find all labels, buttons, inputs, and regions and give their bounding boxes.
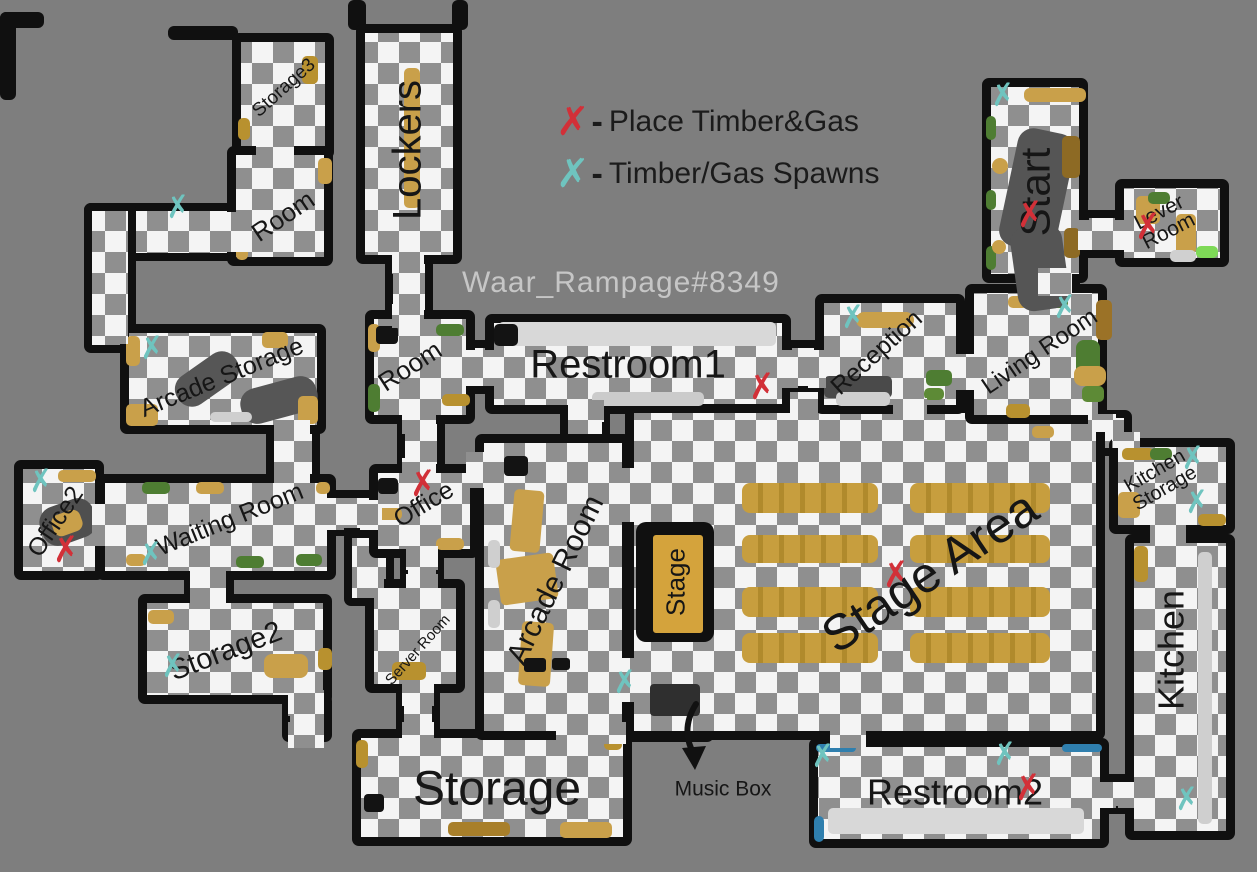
furniture bbox=[1074, 366, 1106, 386]
furniture bbox=[318, 158, 332, 184]
place-marker: ✗ bbox=[50, 531, 83, 569]
door-opening bbox=[92, 318, 128, 344]
furniture bbox=[1062, 136, 1080, 178]
door-opening bbox=[288, 690, 324, 716]
door-opening bbox=[480, 350, 498, 386]
music-box-arrow bbox=[668, 700, 720, 774]
furniture bbox=[238, 118, 250, 140]
furniture bbox=[1082, 386, 1104, 402]
table-row bbox=[910, 633, 1050, 663]
door-opening bbox=[460, 350, 478, 386]
door-marker bbox=[378, 478, 398, 494]
door-opening bbox=[616, 468, 640, 522]
door-opening bbox=[92, 504, 114, 546]
wall-stub bbox=[168, 26, 238, 40]
place-marker: ✗ bbox=[1014, 196, 1047, 234]
furniture bbox=[318, 648, 332, 670]
spawn-marker: ✗ bbox=[1178, 442, 1207, 475]
table-row bbox=[742, 535, 878, 563]
place-marker: ✗ bbox=[1012, 769, 1045, 807]
furniture bbox=[488, 600, 500, 628]
legend-dash: - bbox=[592, 155, 603, 194]
door-opening bbox=[392, 248, 424, 274]
door-opening bbox=[406, 574, 438, 598]
door-opening bbox=[402, 410, 436, 434]
door-opening bbox=[1088, 414, 1116, 432]
spawn-marker: ✗ bbox=[808, 740, 837, 773]
place-marker: ✗ bbox=[407, 465, 440, 503]
furniture bbox=[148, 610, 174, 624]
furniture bbox=[1006, 404, 1030, 418]
door-opening bbox=[1150, 522, 1186, 546]
watermark: Waar_Rampage#8349 bbox=[462, 266, 780, 300]
legend-dash: - bbox=[592, 103, 603, 142]
furniture bbox=[986, 190, 996, 210]
furniture bbox=[356, 740, 368, 768]
spawn-marker: ✗ bbox=[1182, 486, 1211, 519]
door-opening bbox=[1118, 782, 1142, 808]
spawn-marker: ✗ bbox=[990, 738, 1019, 771]
furniture bbox=[58, 470, 96, 482]
door-opening bbox=[808, 350, 826, 388]
place-x-icon: ✗ bbox=[556, 102, 590, 142]
door-opening bbox=[568, 400, 604, 422]
door-marker bbox=[504, 456, 528, 476]
room-label-restroom1: Restroom1 bbox=[530, 345, 726, 386]
spawn-marker: ✗ bbox=[838, 301, 867, 334]
furniture bbox=[924, 388, 944, 400]
door-opening bbox=[556, 722, 600, 744]
door-opening bbox=[256, 138, 294, 166]
spawn-marker: ✗ bbox=[1172, 783, 1201, 816]
door-opening bbox=[406, 546, 438, 570]
door-opening bbox=[893, 398, 927, 426]
furniture bbox=[1196, 246, 1218, 258]
door-opening bbox=[392, 304, 424, 328]
door-opening bbox=[402, 682, 434, 706]
door-opening bbox=[780, 350, 798, 388]
door-marker bbox=[552, 658, 570, 670]
furniture bbox=[442, 394, 470, 406]
room-label-lockers: Lockers bbox=[388, 80, 429, 220]
room-label-storage-big: Storage bbox=[413, 766, 581, 815]
spawn-marker: ✗ bbox=[137, 332, 166, 365]
door-opening bbox=[1108, 220, 1124, 250]
arcade-machine bbox=[509, 489, 544, 553]
door-opening bbox=[190, 588, 226, 612]
furniture bbox=[316, 482, 330, 494]
map: Storage3 Lockers Room Arcade Storage Off… bbox=[0, 0, 1257, 872]
furniture bbox=[196, 482, 224, 494]
spawn-marker: ✗ bbox=[610, 666, 639, 699]
furniture bbox=[986, 116, 996, 140]
door-opening bbox=[324, 498, 344, 530]
furniture bbox=[448, 822, 510, 836]
furniture bbox=[296, 554, 322, 566]
door-marker bbox=[376, 326, 398, 344]
legend-place-row: ✗ - Place Timber&Gas bbox=[556, 102, 859, 142]
furniture bbox=[142, 482, 170, 494]
spawn-x-icon: ✗ bbox=[556, 154, 590, 194]
spawn-marker: ✗ bbox=[136, 538, 165, 571]
furniture bbox=[1062, 744, 1102, 752]
furniture bbox=[436, 538, 464, 550]
door-opening bbox=[1112, 432, 1140, 448]
place-marker: ✗ bbox=[880, 556, 913, 594]
restroom-sinks bbox=[592, 392, 704, 406]
place-marker: ✗ bbox=[746, 368, 779, 406]
room-label-stage: Stage bbox=[663, 548, 690, 616]
music-box-label: Music Box bbox=[675, 778, 772, 799]
spawn-marker: ✗ bbox=[163, 191, 192, 224]
door-opening bbox=[1094, 782, 1116, 808]
furniture bbox=[436, 324, 464, 336]
furniture bbox=[1170, 250, 1196, 262]
door-opening bbox=[352, 574, 384, 598]
furniture bbox=[264, 654, 308, 678]
furniture bbox=[488, 540, 500, 568]
furniture bbox=[210, 412, 252, 422]
door-marker bbox=[494, 324, 518, 346]
furniture bbox=[236, 556, 264, 568]
door-opening bbox=[466, 452, 488, 488]
door-opening bbox=[220, 212, 248, 252]
legend-spawn-label: Timber/Gas Spawns bbox=[609, 157, 880, 191]
furniture bbox=[926, 370, 952, 386]
furniture bbox=[1198, 552, 1212, 824]
spawn-marker: ✗ bbox=[988, 79, 1017, 112]
spawn-marker: ✗ bbox=[1050, 291, 1079, 324]
door-opening bbox=[402, 722, 434, 748]
furniture bbox=[1134, 546, 1148, 582]
wall-stub bbox=[0, 12, 16, 100]
furniture bbox=[560, 822, 612, 838]
door-opening bbox=[360, 500, 382, 530]
door-opening bbox=[830, 726, 866, 748]
room-label-kitchen: Kitchen bbox=[1154, 590, 1191, 710]
furniture bbox=[368, 384, 380, 412]
table-row bbox=[742, 483, 878, 513]
door-opening bbox=[274, 420, 310, 444]
furniture bbox=[814, 816, 824, 842]
furniture bbox=[992, 158, 1008, 174]
spawn-marker: ✗ bbox=[158, 650, 187, 683]
door-marker bbox=[364, 794, 384, 812]
door-opening bbox=[790, 392, 818, 418]
door-opening bbox=[288, 722, 324, 748]
legend-place-label: Place Timber&Gas bbox=[609, 105, 859, 139]
furniture bbox=[992, 240, 1006, 254]
legend-spawn-row: ✗ - Timber/Gas Spawns bbox=[556, 154, 880, 194]
door-opening bbox=[958, 354, 976, 390]
door-opening bbox=[1078, 220, 1094, 250]
furniture bbox=[1032, 426, 1054, 438]
furniture bbox=[1024, 88, 1086, 102]
spawn-marker: ✗ bbox=[26, 465, 55, 498]
place-marker: ✗ bbox=[1132, 208, 1165, 246]
door-opening bbox=[596, 722, 626, 744]
